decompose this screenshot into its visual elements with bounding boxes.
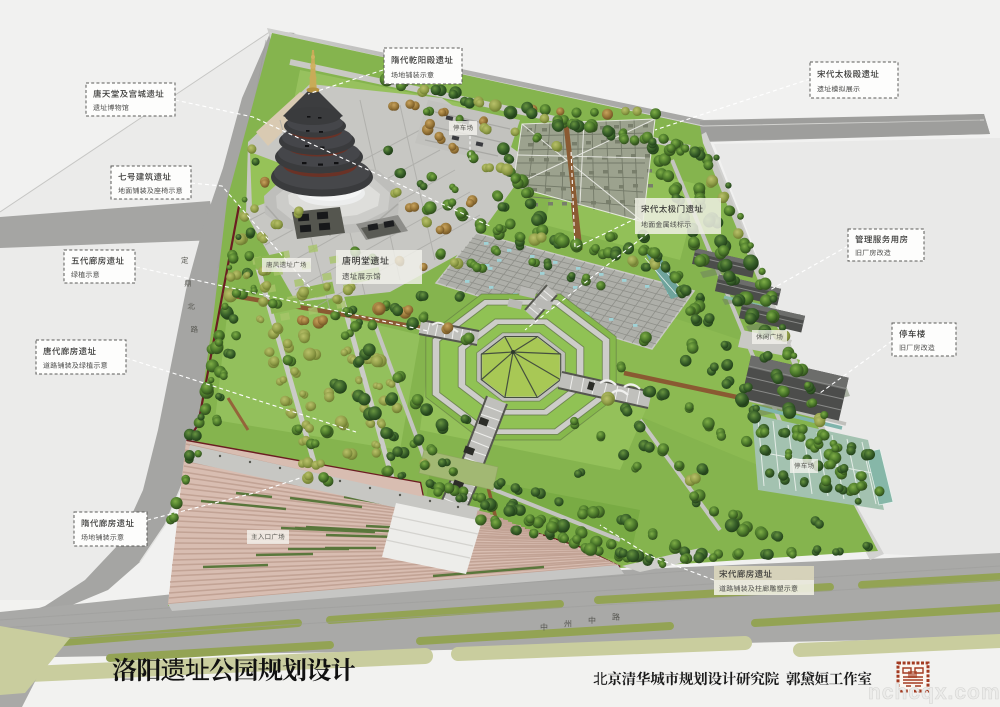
svg-text:nchcqx.com: nchcqx.com [868, 681, 1000, 704]
